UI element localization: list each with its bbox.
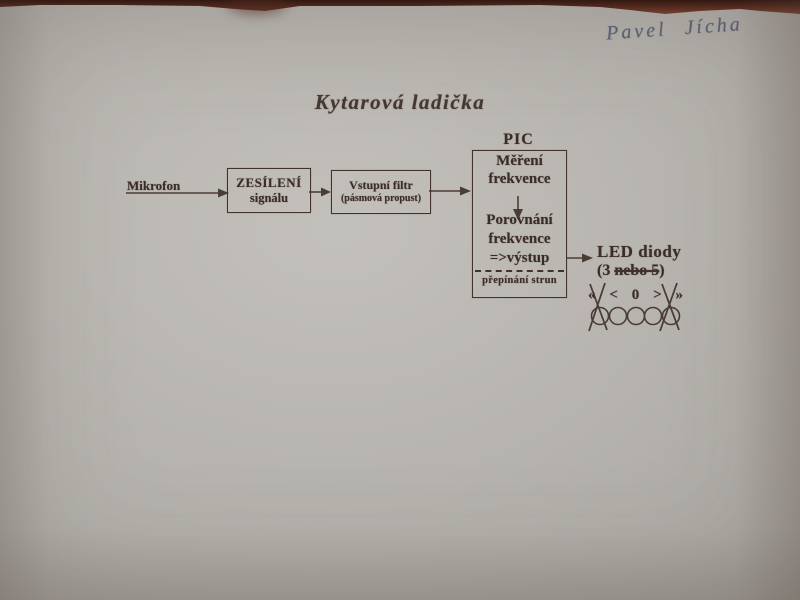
pic-bottom-label: přepínání strun xyxy=(473,274,566,287)
led-label: LED diody xyxy=(597,242,681,262)
led-count-prefix: (3 xyxy=(597,262,614,279)
pic-compare-line2: frekvence xyxy=(473,230,566,249)
amplifier-box-line2: signálu xyxy=(250,191,288,207)
led-circle-3 xyxy=(628,308,645,325)
amplifier-box: ZESÍLENÍ signálu xyxy=(227,168,311,213)
led-count-suffix: ) xyxy=(659,262,664,279)
led-symbol-far-right: » xyxy=(676,287,684,304)
arrow-amp-to-filter xyxy=(309,188,331,197)
table-edge-shape xyxy=(0,0,800,14)
pic-measure-line1: Měření xyxy=(473,152,566,171)
led-symbols-row: « < 0 > » xyxy=(588,287,683,304)
led-symbol-center: 0 xyxy=(632,287,640,304)
led-circle-1 xyxy=(592,308,609,325)
mikrofon-label: Mikrofon xyxy=(127,178,180,194)
pic-box: Měření frekvence Porovnání frekvence =>v… xyxy=(472,150,567,298)
input-filter-box-line1: Vstupní filtr xyxy=(349,178,413,193)
led-count-label: (3 nebo 5) xyxy=(597,262,665,280)
led-circle-5 xyxy=(663,308,680,325)
led-circle-2 xyxy=(610,308,627,325)
pic-dashed-divider xyxy=(475,270,564,272)
led-circle-4 xyxy=(645,308,662,325)
amplifier-box-line1: ZESÍLENÍ xyxy=(236,175,301,191)
pic-output-line: =>výstup xyxy=(473,249,566,268)
led-symbol-far-left: « xyxy=(588,287,596,304)
input-filter-box-line2: (pásmová propust) xyxy=(341,193,421,206)
led-symbol-right: > xyxy=(653,287,662,304)
led-count-struck: nebo 5 xyxy=(614,262,659,279)
pic-measure-line2: frekvence xyxy=(473,170,566,189)
led-symbol-left: < xyxy=(609,287,618,304)
diagram-title: Kytarová ladička xyxy=(300,90,500,115)
paper-edge-smudge xyxy=(228,0,286,14)
pic-compare-line1: Porovnání xyxy=(473,211,566,230)
led-circles xyxy=(592,308,680,325)
handwritten-name: Pavel Jícha xyxy=(605,9,796,45)
input-filter-box: Vstupní filtr (pásmová propust) xyxy=(331,170,431,214)
photo-of-paper-diagram: Pavel Jícha Kytarová ladička xyxy=(0,0,800,600)
arrow-filter-to-pic xyxy=(429,187,471,196)
arrow-pic-to-led xyxy=(566,254,593,263)
pic-label: PIC xyxy=(472,131,565,149)
